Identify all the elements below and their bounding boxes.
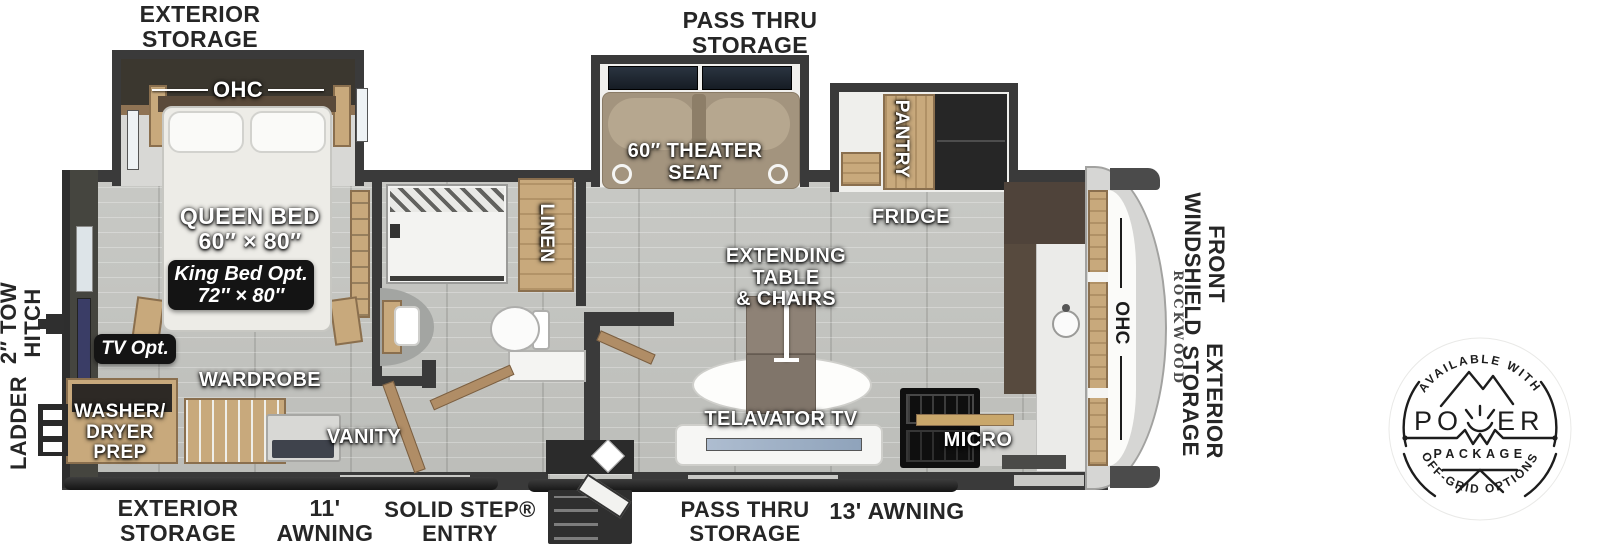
front-ohc-dim-line [1120,356,1122,440]
dinette-table [746,354,816,414]
shower-door [390,276,504,281]
front-ohc-gap [1088,272,1108,282]
bathroom-half-wall [508,350,586,382]
storage-door [1014,475,1084,486]
bathroom-wall-bottom [372,376,428,386]
front-ohc-label: OHC [1108,293,1134,353]
bottom-exterior-storage-label: EXTERIOR STORAGE [80,496,276,544]
entry-steps-treads [554,496,598,540]
kitchen-mat [1002,455,1066,469]
bath-sink-basin [394,306,420,346]
front-cap-trim [1110,168,1160,190]
vanity-label: VANITY [314,426,414,450]
rear-ladder [38,404,68,456]
queen-bed-label: QUEEN BED 60″ × 80″ [157,204,343,254]
front-ohc-gap [1088,388,1108,398]
linen-label: LINEN [533,193,559,273]
slide-window [356,88,368,142]
toilet [490,306,540,352]
fridge-box [935,94,1007,190]
entry-wall-horizontal [584,312,674,326]
king-bed-option-box: King Bed Opt. 72″ × 80″ [168,260,314,310]
tv-option-box: TV Opt. [94,334,176,364]
top-pass-thru-label: PASS THRU STORAGE [652,8,848,54]
power-package-badge: AVAILABLE WITH PO ER PACKAGE OFF-GRID OP… [1385,334,1575,524]
telavator-screen [706,438,862,451]
badge-package-text: PACKAGE [1433,447,1526,461]
badge-divider-dot [1402,435,1407,440]
front-cap-trim [1110,466,1160,488]
bathroom-wall-right [576,172,586,306]
front-ohc-cabinet [1088,190,1108,466]
cutting-board [916,414,1014,426]
pillow [250,111,326,153]
slide-skylight [608,66,698,90]
washer-dryer-label: WASHER/ DRYER PREP [70,398,170,468]
pantry-shelf [841,152,881,186]
door-hinge-post [422,360,436,388]
badge-power-left: PO [1414,406,1463,436]
theater-seat-label: 60″ THEATER SEAT [615,138,775,188]
pantry-slide [830,83,1018,192]
extend-arrow-base [774,358,799,362]
wardrobe-label: WARDROBE [195,369,325,393]
rear-tv [77,298,91,380]
pantry-label: PANTRY [888,99,914,179]
front-ohc-dim-line [1120,218,1122,288]
slide-window [127,110,139,170]
pillow [168,111,244,153]
solid-step-entry-label: SOLID STEP® ENTRY [380,498,540,546]
extending-table-label: EXTENDING TABLE & CHAIRS [696,246,876,294]
shower-hatch [390,188,504,212]
badge-power-right: ER [1497,406,1545,436]
top-exterior-storage-label: EXTERIOR STORAGE [102,2,298,48]
ohc-line [268,89,324,91]
awning-13-label: 13' AWNING [822,498,972,526]
fridge-label: FRIDGE [861,206,961,230]
ohc-line [152,89,208,91]
micro-label: MICRO [928,429,1028,453]
floorplan-canvas: OHC QUEEN BED 60″ × 80″ King Bed Opt. 72… [0,0,1600,549]
bedside-cabinet-right [333,85,351,147]
fridge-divider [937,140,1005,142]
bottom-pass-thru-label: PASS THRU STORAGE [672,498,818,546]
telavator-tv-label: TELAVATOR TV [701,408,861,432]
slide-skylight [702,66,792,90]
awning-bar-11ft [64,477,498,490]
front-exterior-storage-label: EXTERIOR STORAGE [1174,316,1230,486]
ladder-label: LADDER [5,363,33,483]
rear-window [76,226,93,292]
kitchen-upper-cabinet [1004,182,1088,244]
kitchen-sink [1052,310,1080,338]
shower-head [390,224,400,238]
kitchen-faucet [1062,304,1070,312]
awning-11-label: 11' AWNING [258,496,392,544]
badge-divider-dot [1552,435,1557,440]
